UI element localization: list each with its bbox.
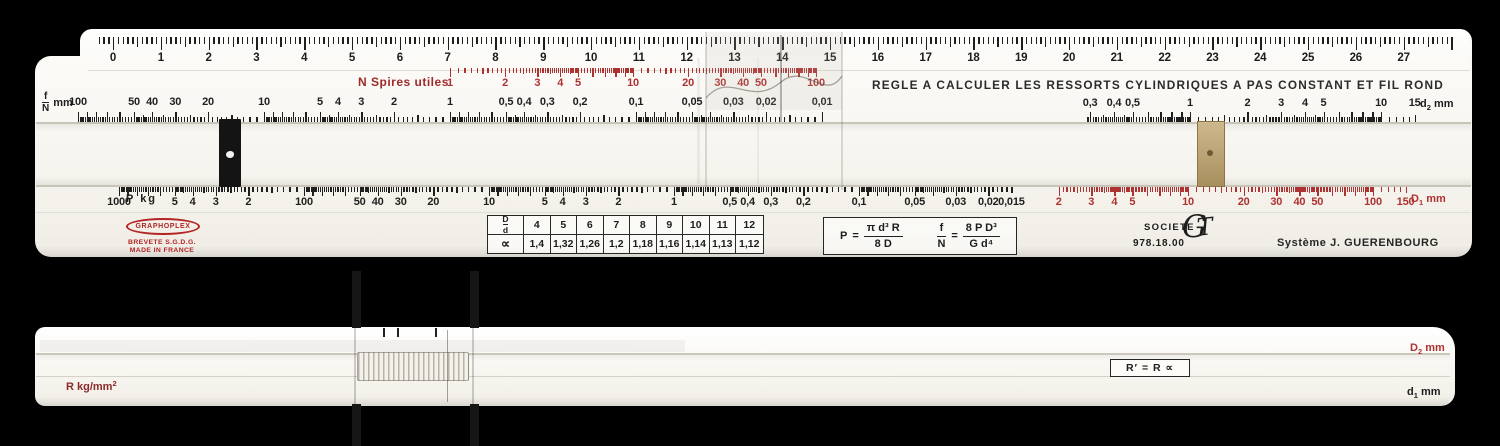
label-unit: mm <box>1425 342 1445 354</box>
table-header-cell: 9 <box>657 216 684 235</box>
label-unit: mm <box>1421 386 1441 398</box>
label-unit: mm <box>1426 193 1446 205</box>
graphoplex-logo: GRAPHOPLEX BREVETE S.G.D.G. MADE IN FRAN… <box>120 218 204 254</box>
label-sub: 2 <box>1427 103 1431 112</box>
table-cell: 1,16 <box>657 235 684 254</box>
label-main: d <box>1420 98 1427 110</box>
p-label: P kg <box>126 194 157 205</box>
formula-lhs-den: N <box>938 237 946 251</box>
back-d2-unit-label: D2 mm <box>1410 343 1445 356</box>
label-den: N <box>42 102 49 114</box>
formula-den: 8 D <box>875 237 892 251</box>
table-header-cell: 5 <box>551 216 578 235</box>
label-main: d <box>1407 386 1414 398</box>
corner-num: D <box>502 215 508 224</box>
table-cell: 1,2 <box>604 235 631 254</box>
formula-num: 8 P D³ <box>963 222 1000 237</box>
label-sub: 1 <box>1419 198 1423 207</box>
table-cell: 1,26 <box>577 235 604 254</box>
f-over-n-label: fN mm <box>42 92 73 114</box>
table-header-cell: 8 <box>630 216 657 235</box>
table-cell: 1,32 <box>551 235 578 254</box>
label-main: D <box>1411 193 1419 205</box>
slide-thumb-tab[interactable] <box>219 119 241 187</box>
formula-num: π d³ R <box>864 222 903 237</box>
gt-logo: G T <box>1182 212 1222 250</box>
brevete-text: BREVETE S.G.D.G. <box>120 239 204 246</box>
cursor-bar-bottom-right <box>470 404 479 446</box>
table-cell: 1,18 <box>630 235 657 254</box>
slide-rule-photo: 0123456789101112131415161718192021222324… <box>0 0 1500 446</box>
systeme-text: Système J. GUERENBOURG <box>1277 238 1439 249</box>
table-header-cell: 4 <box>524 216 551 235</box>
formula-f: fN= 8 P D³G d⁴ <box>937 222 1000 250</box>
n-spires-label: N Spires utiles <box>358 76 449 88</box>
graphoplex-name: GRAPHOPLEX <box>135 223 190 230</box>
d2-unit-label: d2 mm <box>1420 99 1454 112</box>
reference-number: 978.18.00 <box>1133 239 1185 249</box>
r-prime-formula-box: R′ = R ∝ <box>1110 359 1190 377</box>
label-unit: mm <box>1434 98 1454 110</box>
brass-rivet <box>1197 121 1225 187</box>
rivet-center <box>1207 150 1213 156</box>
made-in-france-text: MADE IN FRANCE <box>120 247 204 254</box>
table-cell: 1,12 <box>736 235 763 254</box>
gt-logo-t: T <box>1196 214 1214 240</box>
rule-title: REGLE A CALCULER LES RESSORTS CYLINDRIQU… <box>872 80 1444 92</box>
table-cell: 1,13 <box>710 235 737 254</box>
table-cell: 1,4 <box>524 235 551 254</box>
table-header-cell: 6 <box>577 216 604 235</box>
corner-den: d <box>503 224 508 235</box>
label-sub: 2 <box>1418 347 1422 356</box>
formula-den: G d⁴ <box>969 237 993 251</box>
table-corner: Dd <box>488 216 524 235</box>
back-rule-body <box>35 327 1455 406</box>
formula-box: P= π d³ R8 D fN= 8 P D³G d⁴ <box>823 217 1017 255</box>
label-sub: 1 <box>1414 391 1418 400</box>
table-cell: 1,14 <box>683 235 710 254</box>
cursor-glass <box>706 32 842 110</box>
front-cursor[interactable] <box>695 30 850 230</box>
formula-lhs: P <box>840 230 847 242</box>
back-d1-unit-label: d1 mm <box>1407 387 1441 400</box>
cursor-bar-top-right <box>470 271 479 328</box>
r-unit-label: R kg/mm2 <box>66 380 117 393</box>
graphoplex-ellipse: GRAPHOPLEX <box>126 218 200 235</box>
label-main: D <box>1410 342 1418 354</box>
table-header-cell: 7 <box>604 216 631 235</box>
formula-lhs-num: f <box>937 222 947 237</box>
label-sup: 2 <box>112 379 116 388</box>
d1-unit-label: D1 mm <box>1411 194 1446 207</box>
label-unit: mm <box>53 98 73 109</box>
alpha-row-label: ∝ <box>488 235 524 254</box>
label-num: f <box>44 92 47 102</box>
thumb-tab-hole <box>226 151 234 158</box>
cursor-bar-top-left <box>352 271 361 328</box>
cursor-bar-bottom-left <box>352 404 361 446</box>
label-main: R kg/mm <box>66 381 112 393</box>
